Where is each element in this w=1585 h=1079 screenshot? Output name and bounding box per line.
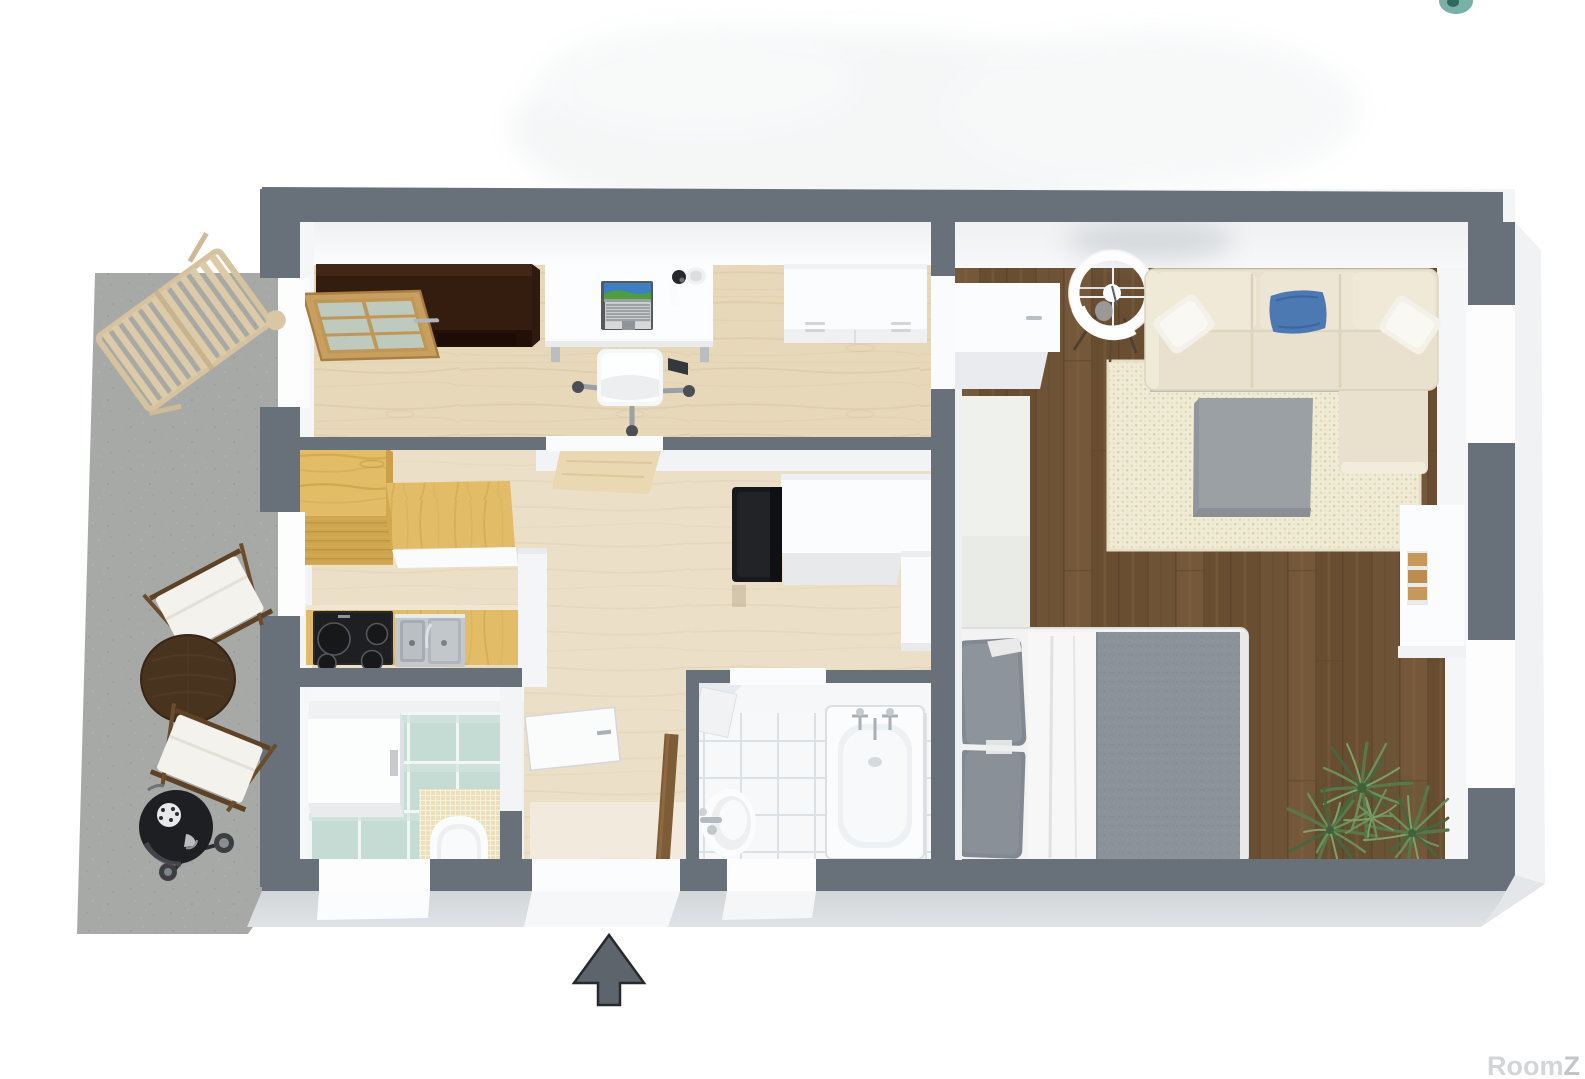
svg-text:RoomZ: RoomZ (1487, 1051, 1580, 1079)
